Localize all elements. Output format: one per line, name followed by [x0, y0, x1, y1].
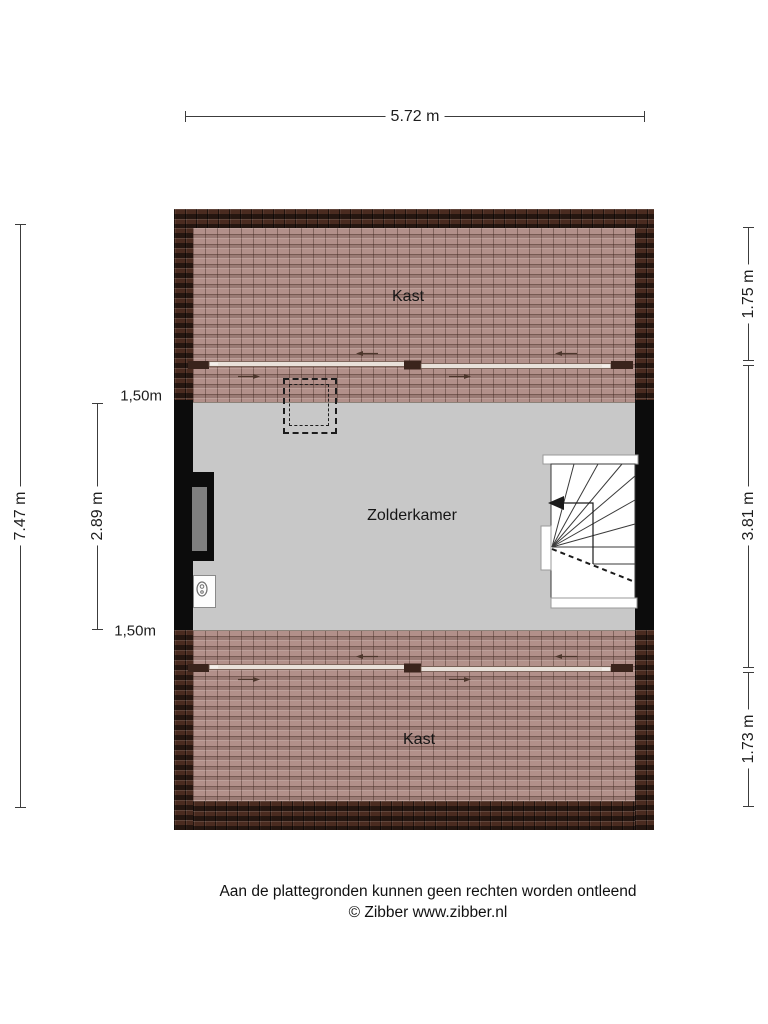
dimension-width-label: 5.72 m — [386, 108, 445, 126]
footer-disclaimer: Aan de plattegronden kunnen geen rechten… — [104, 881, 752, 902]
sliding-door-bottom — [185, 652, 645, 684]
dimension-tick — [743, 227, 754, 228]
dimension-right-middle-label: 3.81 m — [740, 487, 758, 546]
dimension-tick — [743, 667, 754, 668]
dimension-height-total-label: 7.47 m — [12, 487, 30, 546]
sliding-door-top — [185, 349, 645, 381]
footer: Aan de plattegronden kunnen geen rechten… — [104, 881, 752, 923]
dimension-tick — [743, 360, 754, 361]
knee-height-top-label: 1,50m — [118, 388, 164, 405]
roof-edge-bottom — [193, 801, 635, 830]
room-label-attic-room: Zolderkamer — [367, 507, 457, 525]
dimension-tick — [15, 224, 26, 225]
roof-edge-top — [174, 209, 654, 228]
room-label-closet-top: Kast — [392, 288, 424, 306]
knee-wall-line-bottom — [193, 630, 635, 631]
dimension-right-bottom-label: 1.73 m — [740, 710, 758, 769]
dimension-tick — [644, 111, 645, 122]
dimension-tick — [743, 365, 754, 366]
chimney-dashed-inner — [289, 384, 329, 426]
dimension-tick — [15, 807, 26, 808]
dimension-tick — [92, 403, 103, 404]
ventilation-unit-icon — [193, 575, 214, 606]
window-glass — [192, 487, 207, 551]
knee-height-bottom-label: 1,50m — [112, 623, 158, 640]
dimension-tick — [92, 629, 103, 630]
floorplan-canvas: { "dimensions": { "width_total": "5.72 m… — [0, 0, 768, 1024]
dimension-tick — [743, 672, 754, 673]
dimension-tick — [743, 806, 754, 807]
dimension-right-top-label: 1.75 m — [740, 265, 758, 324]
dimension-tick — [185, 111, 186, 122]
dimension-room-height-label: 2.89 m — [89, 487, 107, 546]
staircase — [540, 452, 640, 614]
footer-credit: © Zibber www.zibber.nl — [104, 902, 752, 923]
room-label-closet-bottom: Kast — [403, 731, 435, 749]
knee-wall-line-top — [193, 402, 635, 403]
